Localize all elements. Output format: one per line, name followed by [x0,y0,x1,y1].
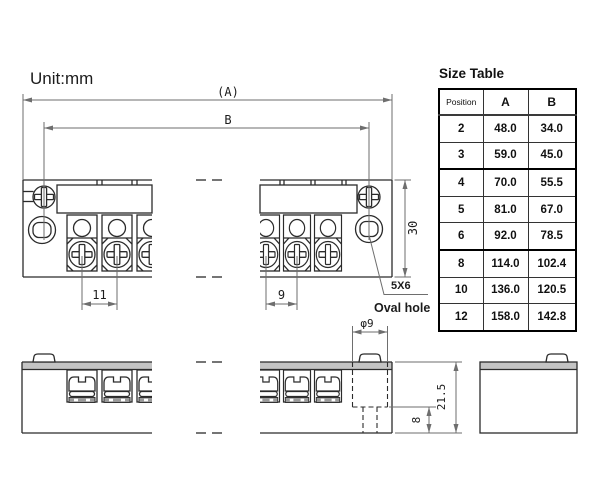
terminal-cell [137,215,167,271]
end-view [480,354,577,433]
table-row: 12158.0142.8 [439,304,576,331]
value-cell: 59.0 [483,142,528,169]
table-row: 470.055.5 [439,169,576,196]
dimension-body-width: 30 [395,180,421,277]
dim-label-body-width: 30 [406,221,420,235]
position-cell: 3 [439,142,483,169]
top-view [23,180,392,277]
position-cell: 5 [439,196,483,223]
mount-screw-head-end [546,354,568,362]
value-cell: 34.0 [528,115,576,142]
dimension-boss-depth: 8 [389,407,436,433]
note-hole-type: Oval hole [374,301,430,315]
side-terminals-right [253,370,342,403]
side-terminal-cell [67,370,97,403]
oval-hole-callout: 5X6 Oval hole [369,235,430,315]
value-cell: 92.0 [483,223,528,250]
side-terminal-cell [137,370,167,403]
value-cell: 48.0 [483,115,528,142]
table-row: 8114.0102.4 [439,250,576,277]
value-cell: 55.5 [528,169,576,196]
side-terminal-cell [315,370,342,403]
table-row: 248.034.0 [439,115,576,142]
mount-screw-head-side-left [33,354,55,362]
col-header-position: Position [439,89,483,115]
oval-hole-left [29,217,56,244]
value-cell: 120.5 [528,277,576,304]
size-table-title: Size Table [439,66,578,81]
cover-strip-right [260,185,357,213]
divider-ticks [97,180,346,185]
size-table-header-row: Position A B [439,89,576,115]
side-view [22,354,392,433]
value-cell: 102.4 [528,250,576,277]
dim-label-body-height: 21.5 [435,384,448,411]
value-cell: 136.0 [483,277,528,304]
col-header-b: B [528,89,576,115]
dimension-overall-length: (A) [23,85,392,180]
position-cell: 2 [439,115,483,142]
cover-strip-left [57,185,152,213]
value-cell: 114.0 [483,250,528,277]
drawing-sheet: (A) B 30 11 9 5X6 Oval hole [0,0,600,500]
position-cell: 6 [439,223,483,250]
dim-label-pitch-left: 11 [92,288,106,302]
position-cell: 12 [439,304,483,331]
value-cell: 81.0 [483,196,528,223]
dim-label-boss-dia: φ9 [360,317,373,330]
unit-label: Unit:mm [30,69,93,88]
break-marks-side-view [196,362,222,433]
side-terminals-left [67,370,167,403]
value-cell: 67.0 [528,196,576,223]
position-cell: 10 [439,277,483,304]
position-cell: 4 [439,169,483,196]
hidden-boss [353,362,388,433]
value-cell: 70.0 [483,169,528,196]
dim-label-mount-pitch: B [224,113,231,127]
mount-screw-head-side-right [359,354,381,362]
break-marks-top-view [196,180,222,277]
size-table-grid: Position A B 248.034.0359.045.0470.055.5… [438,88,577,332]
size-table: Size Table Position A B 248.034.0359.045… [438,66,578,332]
note-hole-size: 5X6 [391,280,411,292]
table-row: 359.045.0 [439,142,576,169]
dim-label-boss-depth: 8 [410,417,423,424]
value-cell: 158.0 [483,304,528,331]
value-cell: 142.8 [528,304,576,331]
terminal-cell [315,215,342,271]
dim-label-pitch-right: 9 [278,288,285,302]
side-terminal-cell [284,370,311,403]
dim-label-overall-length: (A) [217,85,239,99]
side-terminal-cell [253,370,280,403]
value-cell: 78.5 [528,223,576,250]
value-cell: 45.0 [528,142,576,169]
size-table-body: 248.034.0359.045.0470.055.5581.067.0692.… [439,115,576,331]
table-row: 581.067.0 [439,196,576,223]
position-cell: 8 [439,250,483,277]
side-terminal-cell [102,370,132,403]
col-header-a: A [483,89,528,115]
table-row: 10136.0120.5 [439,277,576,304]
table-row: 692.078.5 [439,223,576,250]
